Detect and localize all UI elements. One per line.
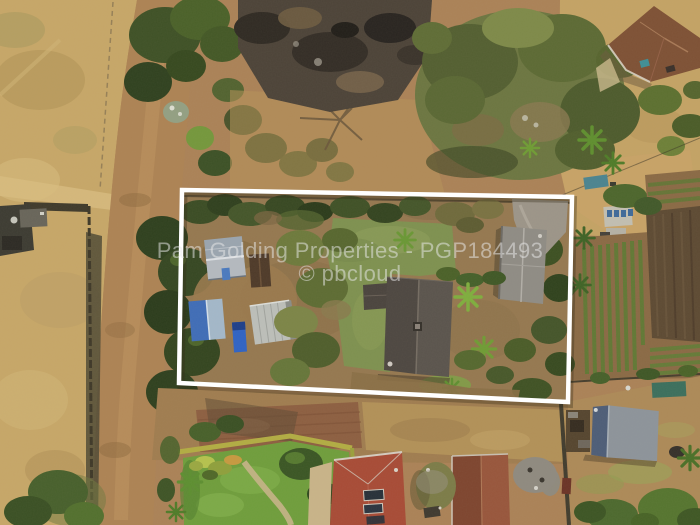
aerial-photo: Pam Golding Properties - PGP184493 © pbc… — [0, 0, 700, 525]
property-boundary-outline-shadow — [181, 193, 574, 405]
property-outline-layer — [0, 0, 700, 525]
property-boundary-outline — [179, 190, 572, 402]
